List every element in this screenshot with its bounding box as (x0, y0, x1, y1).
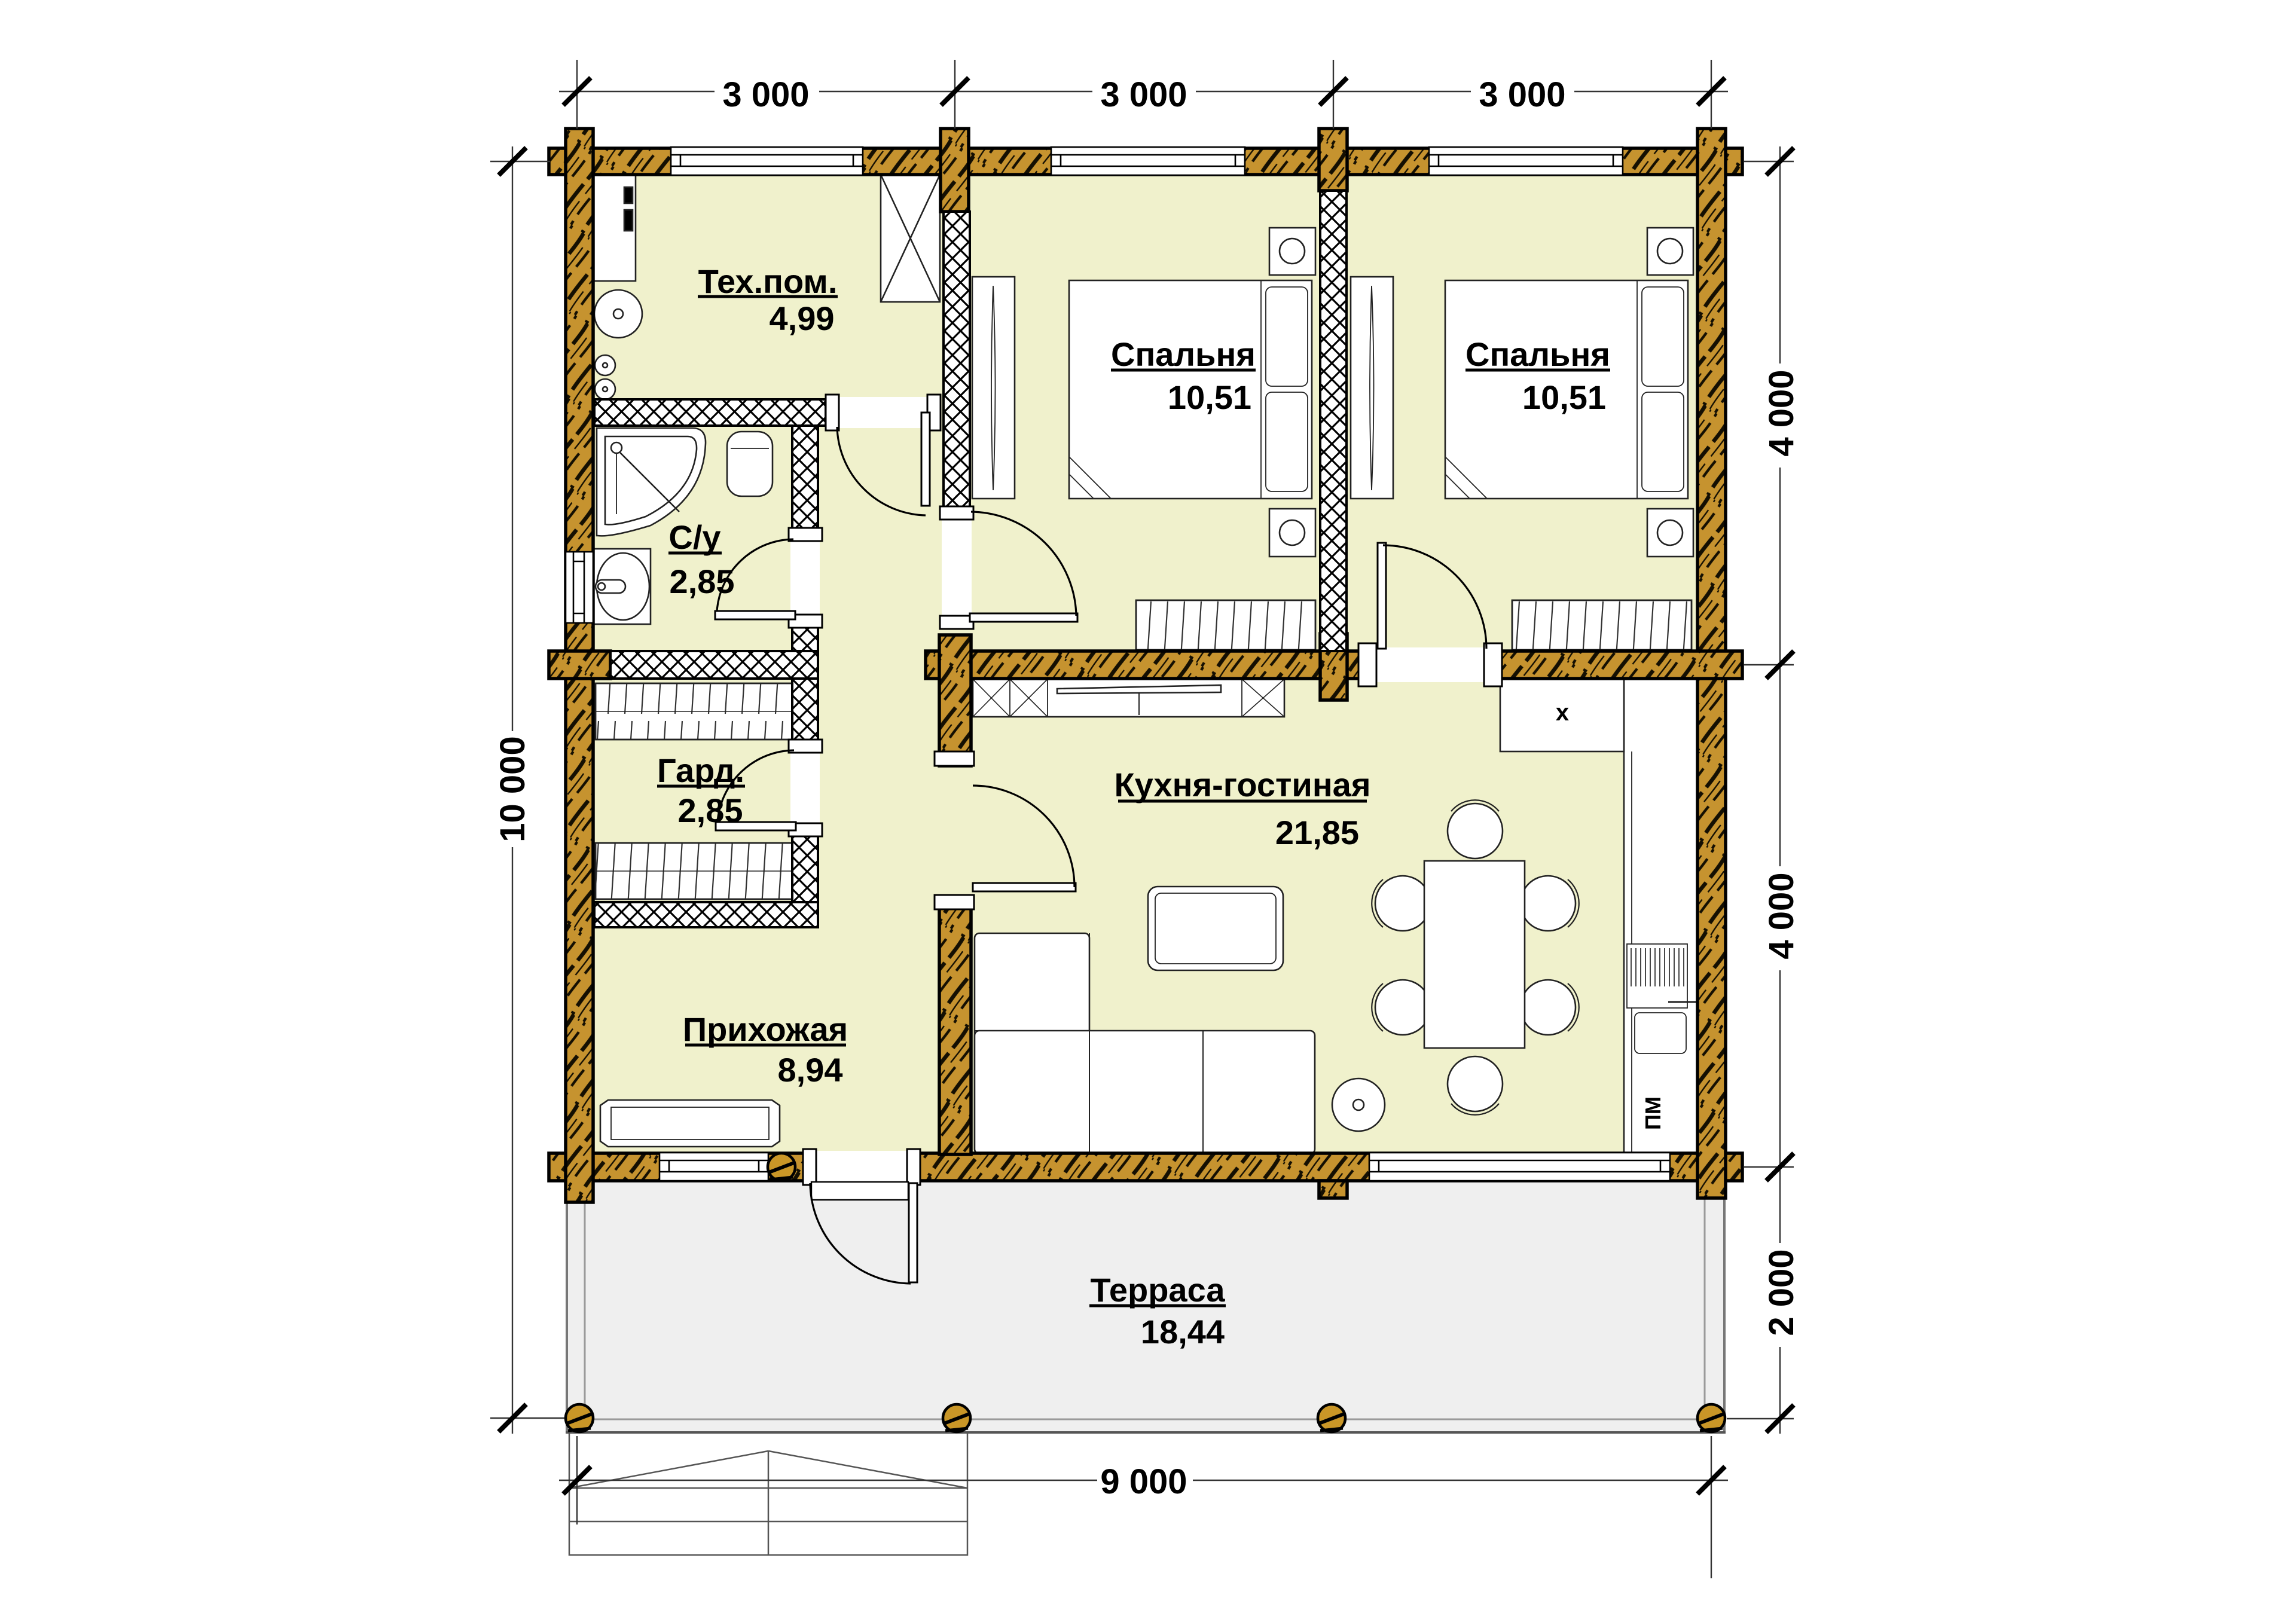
svg-text:4 000: 4 000 (1762, 872, 1801, 959)
svg-text:3 000: 3 000 (1479, 75, 1565, 114)
svg-text:Прихожая: Прихожая (683, 1010, 848, 1048)
svg-text:ПМ: ПМ (1641, 1096, 1665, 1130)
svg-text:4 000: 4 000 (1762, 369, 1801, 456)
svg-text:х: х (1556, 699, 1569, 726)
svg-text:Гард.: Гард. (657, 751, 744, 789)
svg-text:2,85: 2,85 (678, 792, 743, 829)
svg-text:Терраса: Терраса (1090, 1271, 1225, 1309)
svg-text:3 000: 3 000 (1100, 75, 1187, 114)
svg-text:21,85: 21,85 (1275, 814, 1359, 851)
svg-text:Кухня-гостиная: Кухня-гостиная (1115, 766, 1371, 803)
svg-text:2,85: 2,85 (670, 563, 735, 600)
svg-text:10,51: 10,51 (1168, 378, 1251, 416)
svg-text:18,44: 18,44 (1141, 1313, 1225, 1351)
svg-text:10,51: 10,51 (1522, 378, 1606, 416)
svg-text:3 000: 3 000 (722, 75, 809, 114)
svg-text:9 000: 9 000 (1100, 1462, 1187, 1501)
svg-text:Спальня: Спальня (1465, 335, 1610, 373)
svg-text:10 000: 10 000 (493, 736, 532, 842)
svg-text:Тех.пом.: Тех.пом. (698, 262, 838, 300)
svg-text:С/у: С/у (668, 518, 720, 556)
svg-text:Спальня: Спальня (1111, 335, 1256, 373)
svg-text:8,94: 8,94 (778, 1051, 843, 1089)
svg-text:4,99: 4,99 (770, 300, 835, 337)
svg-text:2 000: 2 000 (1762, 1249, 1801, 1336)
